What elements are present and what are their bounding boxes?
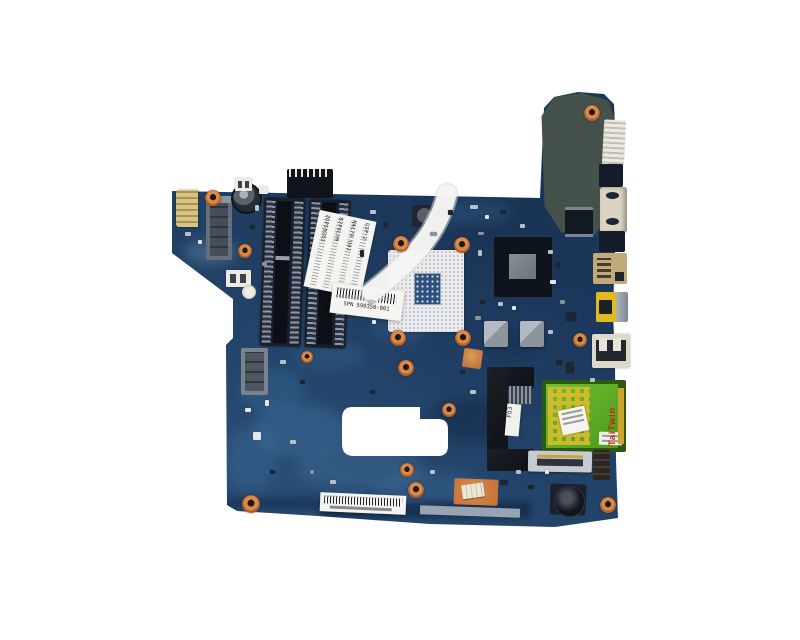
smd-component — [478, 250, 482, 256]
smd-component — [516, 470, 521, 474]
power-connector — [176, 190, 198, 227]
smd-component — [370, 390, 375, 394]
smd-component — [566, 362, 574, 373]
usb-tongue — [599, 338, 607, 351]
copper-tab — [462, 348, 483, 369]
smd-component — [498, 302, 503, 306]
serial-barcode-sticker — [320, 492, 407, 515]
smd-component — [430, 232, 437, 236]
smd-component — [270, 282, 274, 286]
smd-component — [330, 480, 336, 484]
lan-port — [593, 253, 627, 284]
aux-connector — [593, 450, 610, 480]
card-reader: TaiTwin — [542, 380, 626, 452]
small-header-connector — [259, 186, 268, 194]
smd-component — [300, 380, 305, 384]
lan-pin-grid — [597, 258, 611, 278]
connector-slot — [238, 181, 242, 188]
screw-standoff — [400, 463, 414, 477]
ram-pins — [290, 202, 304, 344]
heatsink-fins — [602, 119, 626, 167]
pad-component — [461, 482, 485, 499]
smd-component — [478, 232, 484, 235]
smd-component — [360, 250, 364, 257]
usb-tongue — [613, 338, 621, 351]
power-inductor-3 — [412, 205, 437, 227]
white-header-connector — [235, 178, 252, 191]
ram-slot-1 — [259, 197, 305, 346]
screw-standoff — [238, 244, 252, 258]
io-bracket-lower — [599, 231, 625, 252]
smd-component — [290, 440, 296, 444]
chipset-die — [509, 254, 536, 279]
hdmi-shell — [616, 292, 628, 322]
screw-standoff — [398, 360, 414, 376]
screw-standoff — [408, 482, 424, 498]
power-inductor-1 — [484, 321, 508, 347]
screw-standoff — [205, 190, 221, 206]
vga-screw-post — [606, 192, 619, 199]
smd-component — [512, 306, 516, 310]
screw-standoff — [242, 495, 260, 513]
embedded-controller-chip — [565, 207, 593, 237]
smd-component — [566, 312, 576, 321]
hdd-label: F03 — [505, 403, 522, 436]
copper-thermal-pad — [454, 478, 499, 506]
screw-standoff — [390, 330, 406, 346]
screw-standoff — [573, 333, 587, 347]
smd-component — [470, 205, 478, 209]
smd-component — [590, 378, 595, 382]
connector-slot — [245, 181, 249, 188]
smd-component — [560, 300, 565, 304]
ram-key-notch — [275, 256, 289, 260]
hdmi-port — [596, 292, 628, 322]
motherboard-photo: TaiTwin F03 2GPS9262 B2P6LYN NAL70 U02 L… — [0, 0, 800, 640]
hdd-label-text: F03 — [506, 406, 521, 418]
smd-component — [198, 240, 202, 244]
side-socket-cavity — [210, 202, 228, 256]
card-edge-contacts — [618, 388, 624, 444]
smd-component — [556, 262, 560, 268]
smd-component — [556, 360, 562, 365]
smd-component — [500, 210, 506, 214]
cpu-socket-center — [414, 273, 441, 305]
smd-component — [548, 330, 553, 334]
smd-component — [520, 224, 525, 228]
smd-component — [245, 408, 251, 412]
smd-component — [548, 250, 553, 254]
buzzer — [554, 486, 585, 517]
power-inductor-2 — [520, 321, 544, 347]
smd-component — [280, 360, 286, 364]
screw-standoff — [584, 105, 600, 121]
smd-component — [500, 480, 508, 485]
ram-channel — [273, 201, 292, 343]
barcode-caption-blur — [330, 506, 392, 511]
smd-component — [372, 320, 376, 324]
screw-standoff — [454, 237, 470, 253]
smd-component — [265, 400, 269, 406]
smd-component — [255, 205, 259, 211]
alignment-post — [242, 285, 256, 299]
smd-component — [253, 432, 261, 440]
smd-component — [430, 470, 435, 474]
hdmi-slot — [599, 300, 612, 314]
smd-component — [460, 370, 465, 374]
smd-component — [528, 485, 534, 489]
screw-standoff — [455, 330, 471, 346]
smd-component — [185, 232, 191, 236]
mini-pcie-opening — [537, 459, 583, 467]
connector-slot — [230, 274, 236, 283]
smd-component — [475, 316, 481, 320]
smd-component — [485, 215, 489, 219]
smd-component — [368, 300, 374, 304]
smd-component — [480, 300, 485, 304]
surface-patch — [223, 426, 278, 491]
battery-connector-pins — [289, 169, 331, 177]
chipset — [493, 236, 553, 298]
smd-component — [470, 390, 476, 394]
usb-port — [592, 334, 630, 368]
screw-standoff — [301, 351, 313, 363]
mini-pcie-slot — [528, 450, 592, 472]
inductor-coil-face — [417, 208, 432, 223]
test-card-pcb: TaiTwin — [546, 384, 618, 448]
screw-standoff — [442, 403, 456, 417]
io-bracket-upper — [599, 164, 623, 187]
smd-component — [270, 470, 275, 474]
smd-component — [448, 210, 453, 215]
smd-component — [550, 280, 556, 284]
display-cable-connector — [241, 348, 268, 395]
smd-component — [384, 222, 388, 228]
smd-component — [370, 210, 376, 214]
screw-standoff — [600, 497, 616, 513]
battery-connector — [287, 169, 333, 198]
display-connector-cavity — [245, 352, 264, 391]
lan-notch — [615, 272, 624, 281]
vga-screw-post — [606, 218, 619, 225]
smd-component — [310, 470, 314, 474]
vga-port — [600, 187, 627, 233]
hdd-sata-pins — [509, 386, 532, 404]
smd-component — [262, 262, 267, 266]
smd-component — [545, 470, 549, 474]
smd-component — [250, 225, 255, 229]
connector-slot — [240, 274, 246, 283]
screw-standoff — [393, 236, 409, 252]
